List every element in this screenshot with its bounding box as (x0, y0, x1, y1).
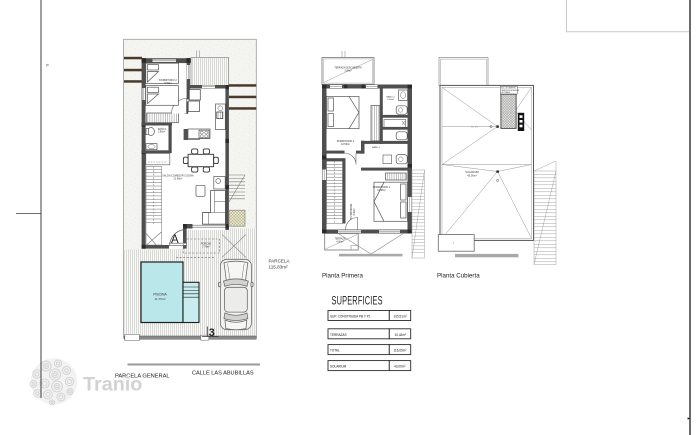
svg-text:TOTAL: TOTAL (330, 348, 340, 352)
svg-text:115,83m²: 115,83m² (269, 265, 289, 270)
svg-text:3.88m²: 3.88m² (344, 69, 351, 72)
svg-text:4.49m²: 4.49m² (353, 208, 356, 215)
svg-text:TERRAZA DESCUBIERTA: TERRAZA DESCUBIERTA (334, 66, 362, 69)
svg-text:11.48m²: 11.48m² (377, 189, 386, 192)
svg-text:21.48m²: 21.48m² (174, 177, 183, 180)
svg-text:43.00m²: 43.00m² (467, 174, 477, 178)
svg-text:Planta Cubierta: Planta Cubierta (437, 273, 480, 280)
svg-text:105,51m²: 105,51m² (394, 314, 408, 318)
svg-text:8.09m²: 8.09m² (164, 82, 172, 85)
svg-text:BAÑO 2: BAÑO 2 (386, 95, 395, 98)
svg-text:BAÑO 1: BAÑO 1 (158, 128, 167, 131)
svg-text:SUP. CONSTRUIDA PB Y P1: SUP. CONSTRUIDA PB Y P1 (330, 314, 371, 318)
svg-text:7.79m²: 7.79m² (202, 245, 210, 248)
svg-text:3: 3 (209, 327, 215, 339)
svg-text:TERRAZA: TERRAZA (335, 238, 346, 241)
svg-text:10.56m²: 10.56m² (341, 143, 350, 146)
svg-text:Planta Primera: Planta Primera (322, 273, 363, 280)
svg-text:3.40m²: 3.40m² (387, 98, 394, 101)
svg-text:SOLARIUM: SOLARIUM (465, 170, 479, 174)
svg-text:NO TRANS.: NO TRANS. (501, 91, 511, 94)
svg-text:116,05m²: 116,05m² (394, 348, 408, 352)
svg-text:CALLE LAS ABUBILLAS: CALLE LAS ABUBILLAS (192, 371, 254, 377)
svg-text:TERRAZAS: TERRAZAS (330, 332, 347, 336)
svg-text:4.06m²: 4.06m² (336, 241, 343, 244)
svg-text:10,42m²: 10,42m² (395, 332, 407, 336)
svg-text:SOLARIUM: SOLARIUM (330, 364, 346, 368)
svg-text:PARCELA: PARCELA (269, 259, 291, 264)
svg-text:BAÑO 1: BAÑO 1 (372, 146, 381, 149)
svg-text:Pte 1%: Pte 1% (471, 126, 478, 129)
svg-text:11,75m²: 11,75m² (155, 297, 166, 301)
svg-text:43,00m²: 43,00m² (394, 364, 406, 368)
svg-text:3.96m²: 3.96m² (158, 131, 165, 134)
svg-text:Tranio: Tranio (83, 374, 142, 396)
svg-text:DISTRIBUIDOR: DISTRIBUIDOR (351, 203, 353, 220)
svg-text:A: A (171, 234, 179, 246)
svg-text:SUPERFICIES: SUPERFICIES (332, 295, 383, 308)
